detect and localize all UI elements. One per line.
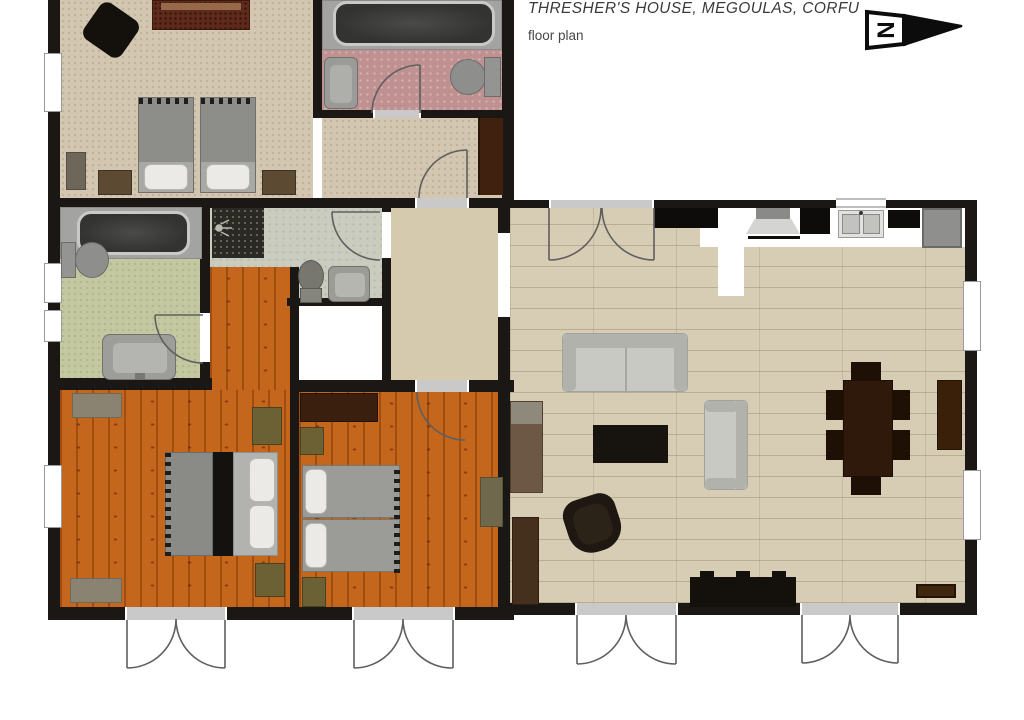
cabinet-left-2 xyxy=(512,517,539,605)
shower-tile xyxy=(212,208,264,258)
toilet-wc xyxy=(298,260,324,304)
wall-ensuite-left xyxy=(313,0,322,118)
nightstand-bedroom1-bottom xyxy=(255,563,285,597)
window-bathroom-main-1 xyxy=(44,263,62,303)
window-bedroom-1 xyxy=(44,465,62,528)
basin-bowl xyxy=(330,65,352,103)
door-sill-bedroom1-ext xyxy=(125,607,227,620)
dining-chair xyxy=(826,430,844,460)
desk-bedroom2 xyxy=(480,477,503,527)
toilet-ensuite xyxy=(450,57,502,97)
nightstand-bedroom2-top xyxy=(300,427,324,455)
sideboard-top xyxy=(511,402,542,424)
door-swing xyxy=(354,619,453,668)
passage-entrance-living xyxy=(498,233,510,317)
bathtub-ensuite xyxy=(333,1,495,46)
cooker-hood-canopy xyxy=(746,219,800,234)
window-bedroom-upper xyxy=(44,53,62,112)
door-sill-living-ext-2 xyxy=(800,603,900,615)
cooker-front-line xyxy=(748,236,800,239)
kitchen-counter-black xyxy=(654,208,718,228)
bed-footboard xyxy=(165,452,171,556)
washbasin-ensuite xyxy=(324,57,358,109)
room-corridor xyxy=(210,267,290,390)
bench-bedroom1-bottom xyxy=(70,578,122,603)
washbasin-main xyxy=(102,334,176,380)
sideboard-right xyxy=(937,380,962,450)
twin-bed-bedroom2-2 xyxy=(302,519,400,572)
sink-tap xyxy=(859,211,863,215)
bed-pillow xyxy=(249,505,275,549)
doormat xyxy=(916,584,956,598)
loveseat xyxy=(704,400,748,490)
toilet-main xyxy=(61,240,109,280)
wall-living-right xyxy=(965,200,977,615)
twin-bed-upper-2 xyxy=(200,97,256,193)
sofa-arm xyxy=(674,334,687,391)
bench-bedroom1-top xyxy=(72,393,122,418)
basin-bowl xyxy=(113,343,167,373)
door-swing xyxy=(802,615,898,663)
wall-entrance-bottom xyxy=(290,380,514,392)
kitchen-peninsula xyxy=(718,243,744,296)
sideboard-left-1 xyxy=(510,401,543,493)
sofa-seam xyxy=(625,348,627,393)
tv-bench xyxy=(690,577,796,607)
bed-pillow xyxy=(305,469,327,514)
tv-bench-knob xyxy=(736,571,750,578)
floor-plan-canvas: N THRESHER'S HOUSE, MEGOULAS, CORFU floo… xyxy=(0,0,1024,720)
twin-bed-bedroom2-1 xyxy=(302,465,400,518)
page-subtitle: floor plan xyxy=(528,28,859,43)
nightstand-upper-left xyxy=(98,170,132,195)
tv-bench-knob xyxy=(772,571,786,578)
sink-basin xyxy=(863,214,880,234)
kitchen-counter-black xyxy=(800,208,830,234)
toilet-tank xyxy=(484,57,501,97)
basin-bowl xyxy=(335,273,365,297)
title-block: THRESHER'S HOUSE, MEGOULAS, CORFU floor … xyxy=(528,0,859,43)
page-title: THRESHER'S HOUSE, MEGOULAS, CORFU xyxy=(528,0,859,18)
toilet-tank xyxy=(61,242,76,278)
room-entrance-hall xyxy=(391,207,498,390)
twin-bed-upper-1 xyxy=(138,97,194,193)
double-bed-bedroom1 xyxy=(165,452,278,556)
door-sill-french-doors xyxy=(549,200,654,208)
door-sill-living-ext-1 xyxy=(575,603,678,615)
nightstand-bedroom1-top xyxy=(252,407,282,445)
fridge xyxy=(922,208,962,248)
nightstand-bedroom2-bottom xyxy=(302,577,326,607)
dining-table xyxy=(843,380,893,477)
bed-pillow xyxy=(144,164,188,190)
kitchen-counter-black xyxy=(888,210,920,228)
dining-chair xyxy=(851,362,881,380)
door-sill-upper-hall xyxy=(415,198,469,208)
window-living-right-2 xyxy=(963,470,981,540)
room-hall-upper xyxy=(322,118,502,198)
sofa-back xyxy=(563,334,687,348)
door-opening-bathroom-main xyxy=(200,313,210,362)
door-sill-bedroom2-ext xyxy=(352,607,455,620)
nightstand-upper-right xyxy=(262,170,296,195)
wall-right-upper xyxy=(502,0,514,208)
stairs xyxy=(478,118,503,195)
wardrobe-bedroom2 xyxy=(300,393,378,422)
window-living-right-1 xyxy=(963,281,981,351)
bed-pillow xyxy=(249,458,275,502)
dining-chair xyxy=(892,430,910,460)
loveseat-arm xyxy=(705,401,738,412)
sink-basin xyxy=(842,214,860,234)
dining-chair xyxy=(892,390,910,420)
cooker-hood-back xyxy=(756,208,790,220)
bed-pillow xyxy=(206,164,250,190)
bench-upper-left xyxy=(66,152,86,190)
bed-footboard xyxy=(201,98,255,104)
tv-bench-knob xyxy=(700,571,714,578)
toilet-bowl xyxy=(450,59,486,95)
loveseat-back xyxy=(736,401,747,489)
north-arrow-label: N xyxy=(872,21,899,38)
toilet-bowl xyxy=(75,242,109,278)
loveseat-arm xyxy=(705,478,738,489)
kitchen-sink xyxy=(838,210,884,238)
window-bathroom-main-2 xyxy=(44,310,62,342)
dining-chair xyxy=(826,390,844,420)
door-swing xyxy=(127,619,225,668)
washbasin-wc xyxy=(328,266,370,302)
basin-tap xyxy=(135,373,145,379)
coffee-table xyxy=(593,425,668,463)
window-kitchen xyxy=(836,198,886,208)
sofa xyxy=(562,333,688,392)
sofa-arm xyxy=(563,334,576,391)
toilet-tank xyxy=(300,288,322,303)
rug-stripe xyxy=(161,3,241,10)
door-opening-wc xyxy=(382,212,391,258)
north-arrow-icon: N xyxy=(867,12,962,48)
door-swing xyxy=(577,615,676,664)
bed-pillow xyxy=(305,523,327,568)
wall-left-lower xyxy=(48,198,60,620)
bed-footboard xyxy=(394,520,400,573)
door-sill-ensuite xyxy=(373,110,421,118)
bed-footboard xyxy=(139,98,193,104)
wall-bedroom2-left xyxy=(290,267,299,607)
dining-chair xyxy=(851,477,881,495)
bed-runner xyxy=(213,452,233,556)
rug-bench xyxy=(152,0,250,30)
armchair-cushion xyxy=(570,500,616,547)
bed-footboard xyxy=(394,466,400,519)
bed-duvet xyxy=(165,452,213,556)
door-sill-bedroom2 xyxy=(415,380,469,392)
